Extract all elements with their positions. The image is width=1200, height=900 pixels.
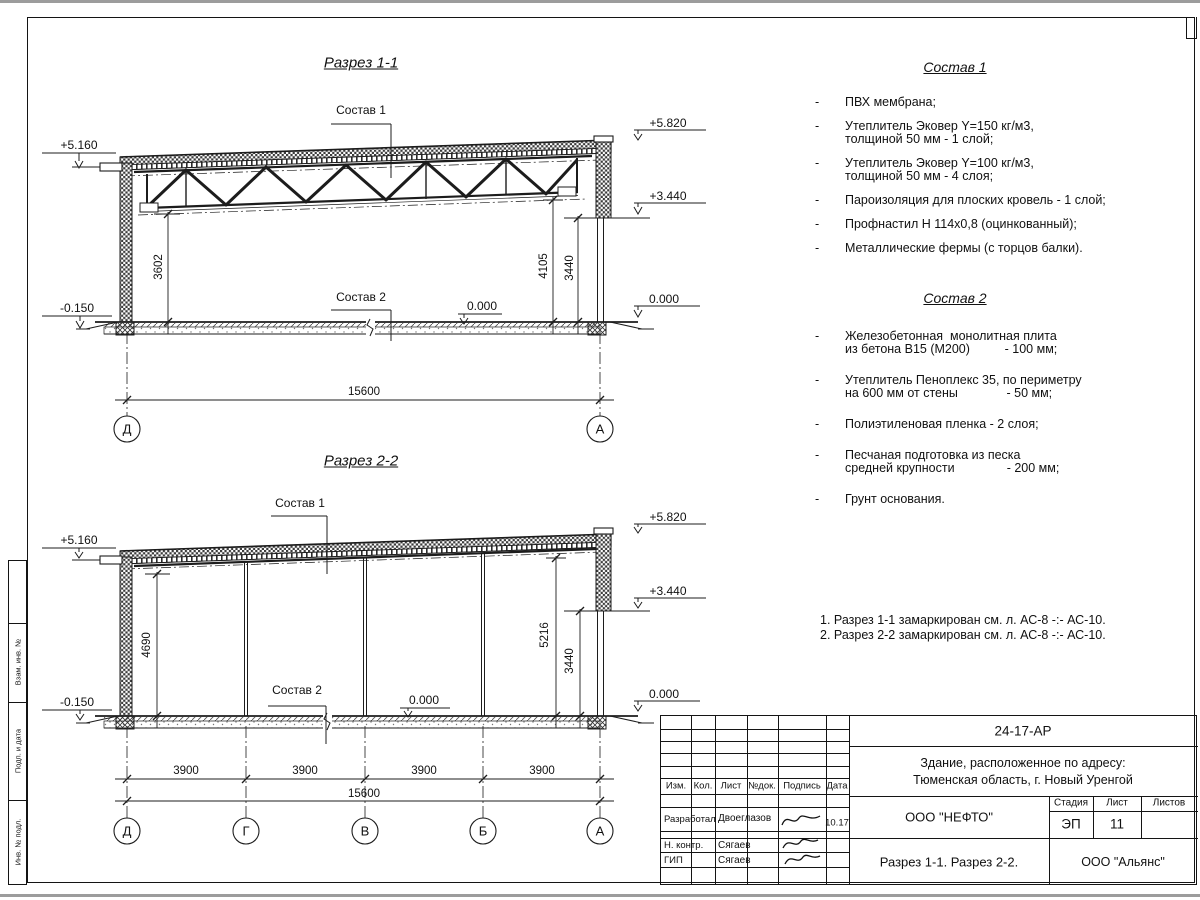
list-item: -Песчаная подготовка из песка средней кр… [812,449,1194,475]
stamp-stage-value: ЭП [1061,817,1080,832]
list-item: -Пароизоляция для плоских кровель - 1 сл… [812,194,1194,207]
s2-dim-bay-3: 3900 [411,765,437,777]
note-line-2: 2. Разрез 2-2 замаркирован см. л. АС-8 -… [820,628,1106,642]
stamp-line [661,778,849,779]
s1-axis-a: А [596,422,605,437]
stamp-col-podpis: Подпись [783,781,821,792]
stamp-stage-label: Стадия [1054,798,1088,809]
composition-1-list: -ПВХ мембрана; -Утеплитель Эковер Y=150 … [812,96,1194,266]
s2-axis-a: А [596,824,605,839]
list-item: -Профнастил Н 114х0,8 (оцинкованный); [812,218,1194,231]
frame-side-strip: Взам. инв. № Подп. и дата Инв. № подл. [8,560,27,885]
title-block: Изм. Кол. Лист №док. Подпись Дата Разраб… [660,715,1197,885]
s2-elevation-right-top: +5.820 [649,510,686,524]
stamp-col-ndok: №док. [748,781,776,792]
s2-elevation-right-floor: 0.000 [649,687,679,701]
s1-elevation-left-ground: -0.150 [60,301,94,315]
list-item: -ПВХ мембрана; [812,96,1194,109]
stamp-line [849,838,1198,839]
stamp-line [661,807,849,808]
s2-axis-d: Д [123,824,132,839]
signature-developer [779,809,823,829]
stamp-line [1093,796,1094,838]
list-item: -Грунт основания. [812,493,1194,506]
list-item: -Металлические фермы (с торцов балки). [812,242,1194,255]
composition-2-heading: Состав 2 [923,290,986,306]
s1-elevation-right-floor: 0.000 [649,292,679,306]
strip-label-podp: Подп. и дата [14,729,23,773]
stamp-line [1141,796,1142,838]
s1-dim-right-clear: 4105 [538,253,550,279]
stamp-date-developer: 10.17 [825,818,849,829]
stamp-sheet-title: Разрез 1-1. Разрез 2-2. [880,855,1018,870]
stamp-line [661,729,849,730]
strip-label-vzam: Взам. инв. № [14,639,23,685]
s1-elevation-inner-floor: 0.000 [467,299,497,313]
stamp-line [849,796,1198,797]
s1-dim-right-mid: 3440 [564,255,576,281]
s2-composition1-label: Состав 1 [275,496,325,510]
s1-elevation-right-top: +5.820 [649,116,686,130]
signature-ncontrol-gip [777,835,823,869]
composition-2-list: -Железобетонная монолитная плита из бето… [812,330,1194,524]
stamp-name-gip: Сягаев [718,855,751,866]
s1-axis-d: Д [123,422,132,437]
s2-dim-span: 15600 [348,788,380,800]
stamp-line [661,741,849,742]
s2-elevation-inner-floor: 0.000 [409,693,439,707]
s2-axis-v: В [361,824,370,839]
s2-axis-b: Б [479,824,488,839]
list-item: -Железобетонная монолитная плита из бето… [812,330,1194,356]
stamp-line [849,716,850,884]
stamp-sheet-label: Лист [1106,798,1128,809]
s2-dim-left-clear: 4690 [141,632,153,658]
strip-divider [9,702,26,703]
section-1-title: Разрез 1-1 [324,55,398,72]
stamp-line [661,766,849,767]
stamp-line [1049,796,1050,884]
stamp-col-kol: Кол. [694,781,713,792]
stamp-company: ООО "НЕФТО" [905,810,993,825]
stamp-object-line-1: Здание, расположенное по адресу: [920,756,1125,770]
stamp-org: ООО "Альянс" [1081,855,1165,869]
s1-dim-span: 15600 [348,386,380,398]
s2-elevation-left-ground: -0.150 [60,695,94,709]
stamp-object-line-2: Тюменская область, г. Новый Уренгой [913,773,1133,787]
list-item: -Утеплитель Эковер Y=100 кг/м3, толщиной… [812,157,1194,183]
stamp-name-ncontrol: Сягаев [718,840,751,851]
strip-divider [9,800,26,801]
s2-elevation-left-top: +5.160 [60,533,97,547]
stamp-doc-number: 24-17-АР [994,724,1051,739]
s1-elevation-right-mid: +3.440 [649,189,686,203]
s1-dim-left-clear: 3602 [153,254,165,280]
s2-dim-bay-1: 3900 [173,765,199,777]
stamp-line [661,794,849,795]
s2-dim-bay-2: 3900 [292,765,318,777]
stamp-role-ncontrol: Н. контр. [664,840,703,851]
list-item: -Полиэтиленовая пленка - 2 слоя; [812,418,1194,431]
list-item: -Утеплитель Эковер Y=150 кг/м3, толщиной… [812,120,1194,146]
stamp-line [1049,811,1198,812]
list-item: -Утеплитель Пеноплекс 35, по периметру н… [812,374,1194,400]
s2-composition2-label: Состав 2 [272,683,322,697]
stamp-sheet-value: 11 [1110,817,1124,832]
s2-elevation-right-mid: +3.440 [649,584,686,598]
section-2-title: Разрез 2-2 [324,453,398,470]
stamp-col-data: Дата [826,781,847,792]
note-line-1: 1. Разрез 1-1 замаркирован см. л. АС-8 -… [820,613,1106,627]
stamp-line [661,831,849,832]
composition-1-heading: Состав 1 [923,59,986,75]
s1-elevation-left-top: +5.160 [60,138,97,152]
s1-composition2-label: Состав 2 [336,290,386,304]
stamp-col-izm: Изм. [666,781,686,792]
drawing-sheet: Разрез 1-1 Состав 1 Состав 2 +5.160 -0.1… [0,0,1200,900]
s2-dim-right-clear: 5216 [539,622,551,648]
s2-axis-g: Г [242,824,249,839]
stamp-role-gip: ГИП [664,855,683,866]
stamp-line [661,753,849,754]
stamp-role-developer: Разработал [664,814,716,825]
s2-dim-bay-4: 3900 [529,765,555,777]
s2-dim-right-mid: 3440 [564,648,576,674]
s1-composition1-label: Состав 1 [336,103,386,117]
stamp-col-list: Лист [721,781,742,792]
stamp-line [849,746,1198,747]
stamp-sheets-label: Листов [1153,798,1186,809]
strip-divider [9,623,26,624]
strip-label-inv: Инв. № подл. [14,819,23,866]
stamp-name-developer: Двоеглазов [718,813,771,824]
